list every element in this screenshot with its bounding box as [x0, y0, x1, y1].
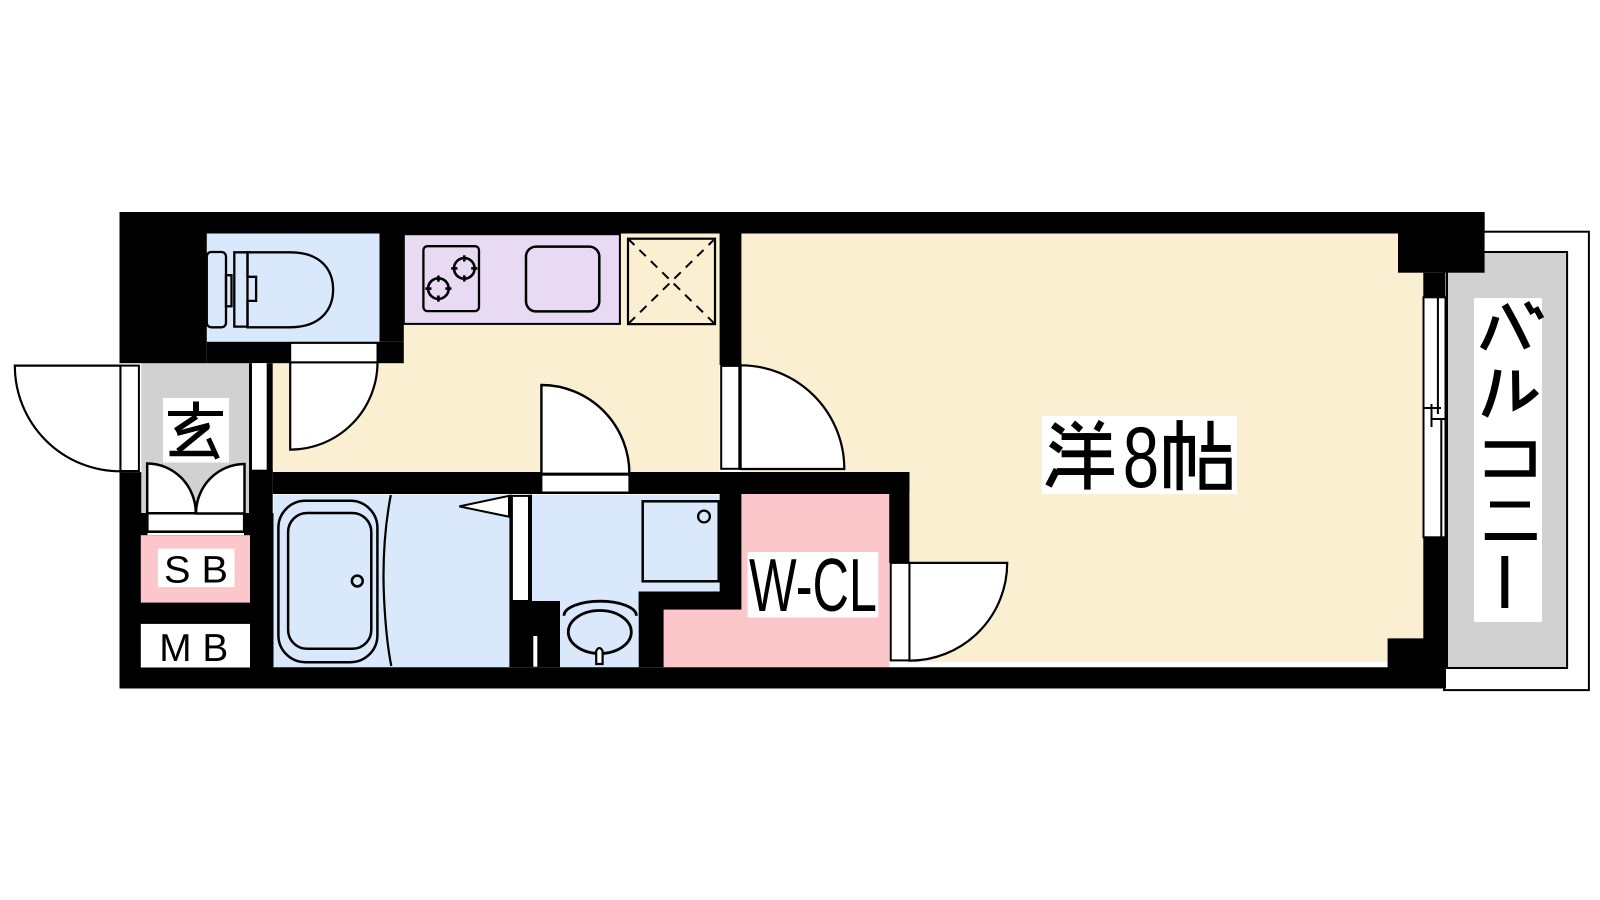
svg-text:8: 8: [1123, 410, 1159, 506]
svg-text:W-CL: W-CL: [749, 543, 877, 627]
svg-text:M B: M B: [159, 627, 228, 670]
svg-text:S B: S B: [164, 548, 228, 590]
